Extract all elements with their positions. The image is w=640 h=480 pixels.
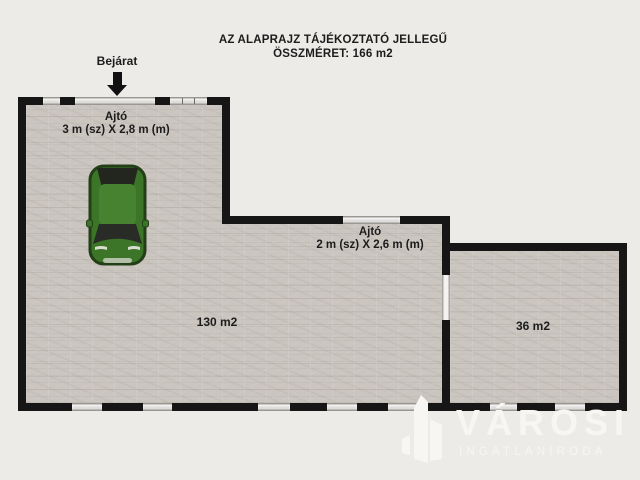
entrance-door-opening: [75, 97, 155, 105]
entrance-arrow-icon: [107, 72, 128, 97]
door-label-1: Ajtó 3 m (sz) X 2,8 m (m): [36, 111, 196, 137]
car-top-view-icon: [86, 163, 149, 268]
window-opening-bottom-3: [258, 403, 290, 411]
window-opening-bottom-1: [72, 403, 102, 411]
wall-side-room-top: [442, 243, 627, 251]
plan-title-line1: AZ ALAPRAJZ TÁJÉKOZTATÓ JELLEGŰ: [183, 34, 483, 48]
interior-door-opening: [442, 275, 450, 320]
door-2-size: 2 m (sz) X 2,6 m (m): [290, 239, 450, 252]
plan-title: AZ ALAPRAJZ TÁJÉKOZTATÓ JELLEGŰ ÖSSZMÉRE…: [183, 34, 483, 61]
window-opening-top-1: [43, 97, 60, 105]
wall-left: [18, 97, 26, 411]
window-opening-top-2: [170, 97, 207, 105]
brand-name: VÁROSI: [456, 402, 630, 444]
door-1-size: 3 m (sz) X 2,8 m (m): [36, 124, 196, 137]
wall-garage-right: [222, 97, 230, 224]
floor-plan-canvas: AZ ALAPRAJZ TÁJÉKOZTATÓ JELLEGŰ ÖSSZMÉRE…: [0, 0, 640, 480]
door-1-name: Ajtó: [36, 111, 196, 124]
window-opening-bottom-4: [327, 403, 357, 411]
brand-tagline: INGATLANIRODA: [459, 446, 607, 458]
room-area-label-main: 130 m2: [167, 315, 267, 329]
wall-mid-horizontal: [222, 216, 450, 224]
buildings-logo-icon: [400, 392, 455, 467]
room-area-label-side: 36 m2: [483, 319, 583, 333]
door-opening-2: [343, 216, 400, 224]
plan-total-size: ÖSSZMÉRET: 166 m2: [183, 48, 483, 62]
wall-right: [619, 243, 627, 411]
entrance-label: Bejárat: [77, 54, 157, 68]
door-label-2: Ajtó 2 m (sz) X 2,6 m (m): [290, 226, 450, 252]
door-2-name: Ajtó: [290, 226, 450, 239]
window-opening-bottom-2: [143, 403, 172, 411]
